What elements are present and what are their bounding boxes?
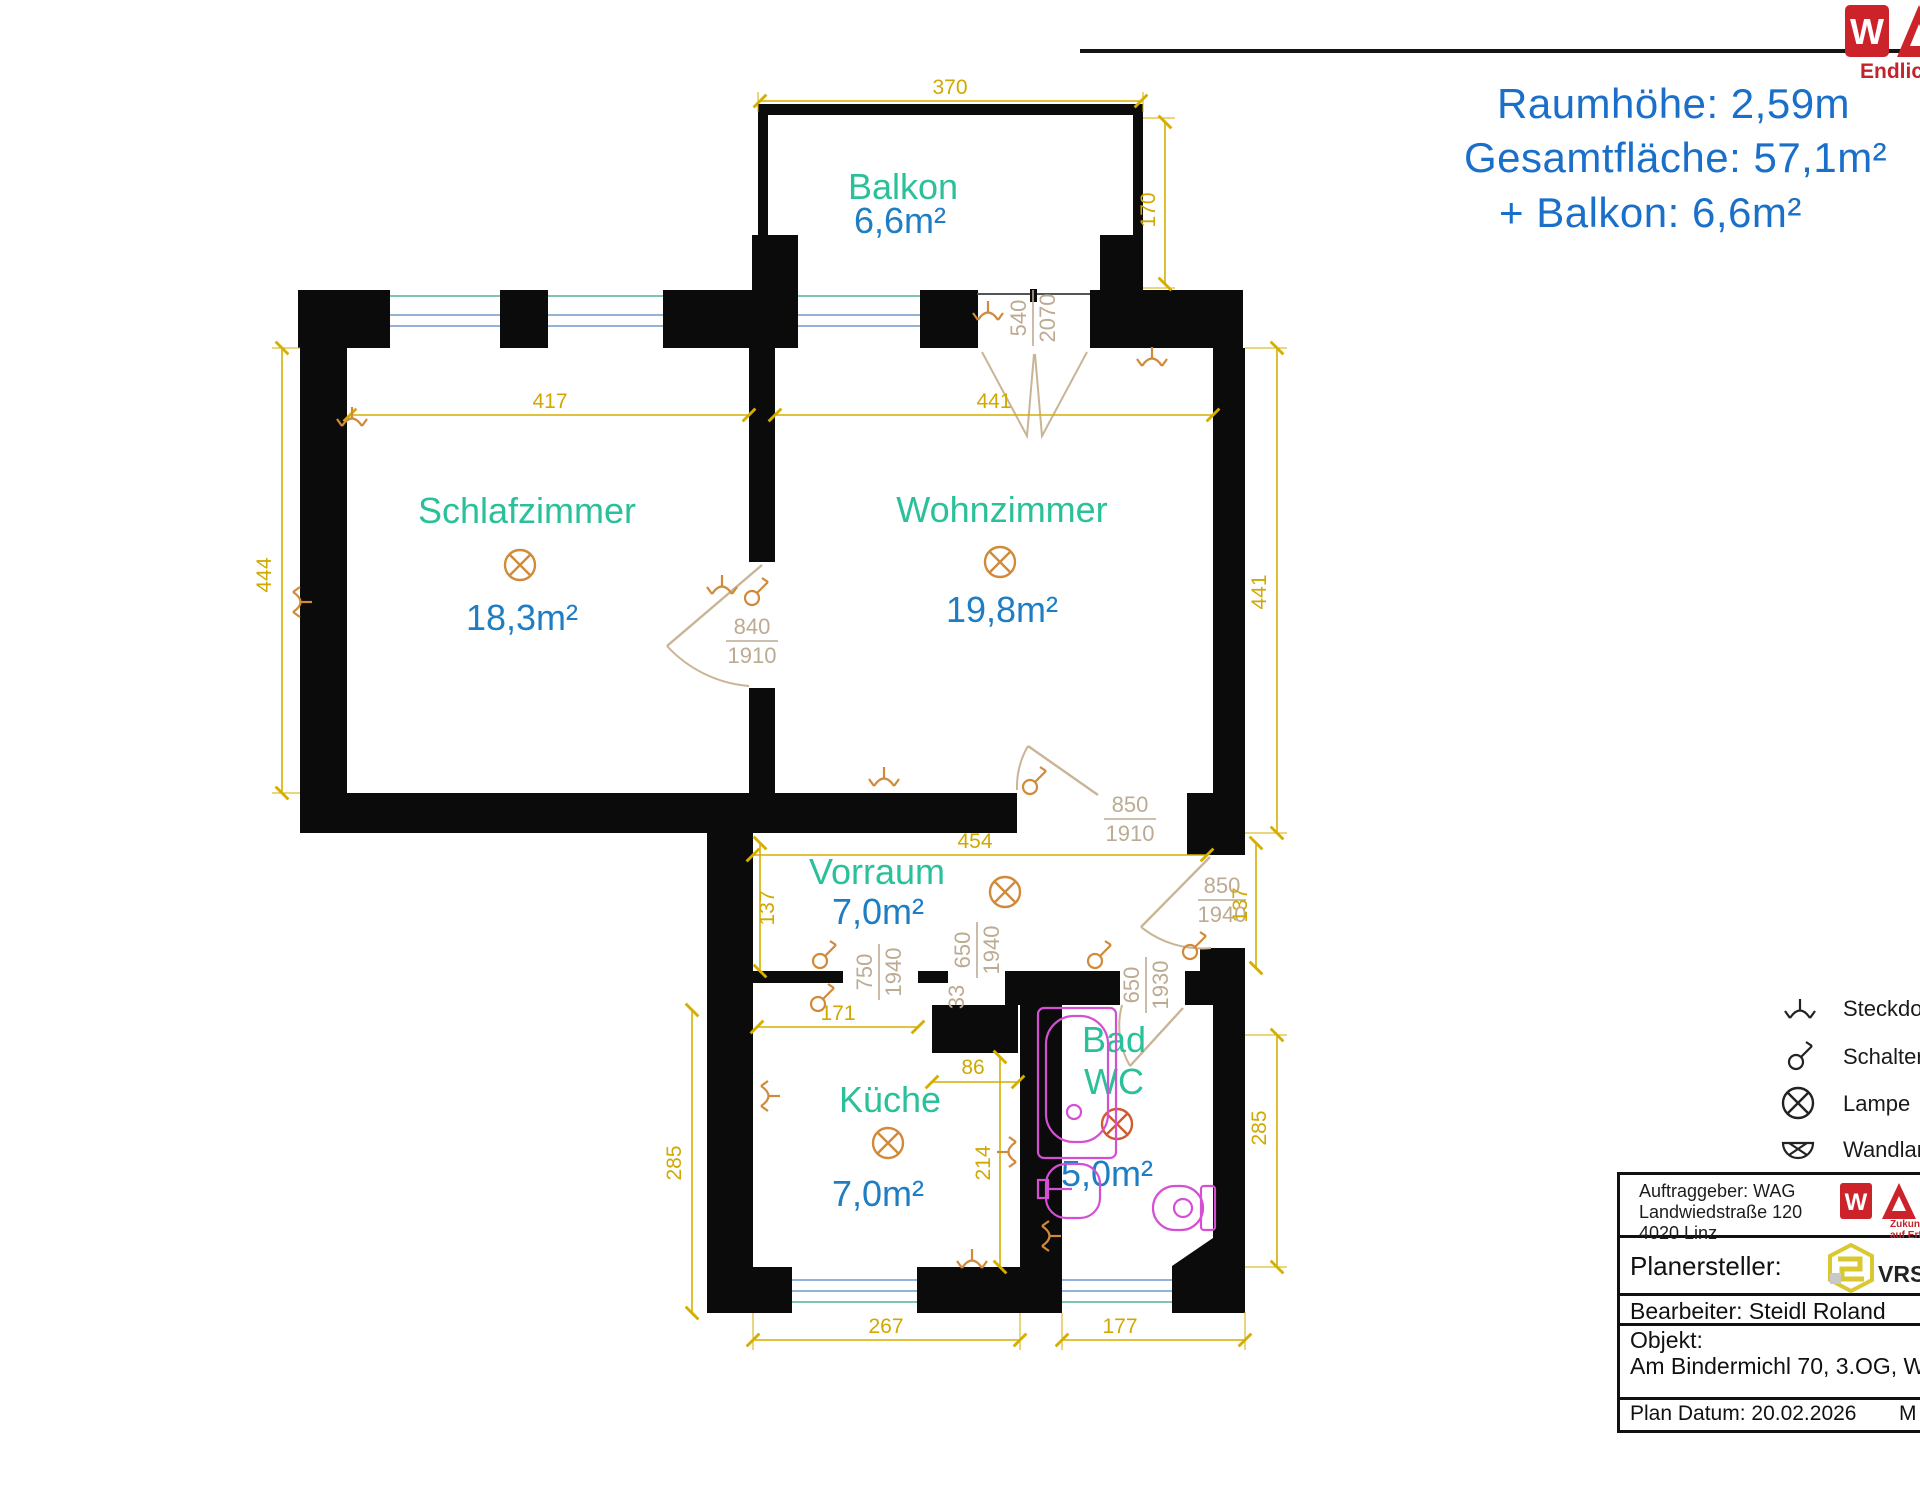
door-size: 750 [852,954,877,991]
dim-balkon-depth: 170 [1137,192,1160,227]
massstab-label: M [1899,1402,1917,1426]
outlet-icon [761,1081,780,1111]
kitchen-door-label: 750 1940 [852,944,906,1000]
legend-label-steckdose: Steckdose [1843,996,1920,1021]
dim-vorraum-left: 137 [756,890,779,925]
dim-schlaf-width: 417 [532,390,567,413]
legend-label-wandlampe: Wandlampe [1843,1137,1920,1162]
bath-door-label: 650 1930 [1119,957,1173,1013]
header-raumhoehe: Raumhöhe: 2,59m [1497,80,1850,128]
header-rule [1080,49,1920,53]
lamp-icon [990,877,1020,907]
bathtub-drain [1067,1105,1081,1119]
wag-tagline: Endlich [1860,60,1920,83]
wag-tagline-1: Zukunf [1890,1219,1920,1230]
door-size: 650 [1119,967,1144,1004]
dim-kueche-height: 285 [663,1145,686,1180]
objekt-value: Am Bindermichl 70, 3.OG, WG 7 [1630,1353,1920,1380]
lamp-icon [505,550,535,580]
door-size: 1910 [728,643,777,668]
dim-kueche-width: 267 [868,1315,903,1338]
door-size: 650 [950,932,975,969]
room-area-vorraum: 7,0m² [832,891,924,932]
top-brand: W Endlich [1080,5,1920,83]
legend-walllamp-icon [1783,1143,1813,1158]
dim-wohn-height: 441 [1248,574,1271,609]
client-street: Landwiedstraße 120 [1639,1202,1802,1223]
balcony-door-label: 540 2070 [1006,290,1060,346]
client-city: 4020 Linz [1639,1223,1717,1244]
header-balkon: + Balkon: 6,6m² [1499,189,1802,237]
floorplan-page: 540 2070 840 1910 850 1910 850 1940 750 … [0,0,1920,1486]
legend-outlet-icon [1785,999,1815,1018]
dim-balkon-width: 370 [932,76,967,99]
outlet-icon [869,767,899,786]
switch-icon [745,578,768,605]
dim-vorraum-width: 454 [957,830,992,853]
room-area-bad: 5,0m² [1061,1153,1153,1194]
door-size: 33 [944,985,969,1009]
outlet-icon [957,1249,987,1268]
titleblock-divider [1620,1293,1920,1296]
titleblock-divider [1620,1397,1920,1400]
client-name: Auftraggeber: WAG [1639,1181,1795,1202]
door-size: 840 [734,614,771,639]
title-block: Auftraggeber: WAG Landwiedstraße 120 402… [1617,1172,1920,1433]
room-area-balkon: 6,6m² [854,200,946,241]
dim-nische: 86 [961,1056,984,1079]
plan-datum: Plan Datum: 20.02.2026 [1630,1402,1857,1426]
dim-schlaf-height: 444 [253,557,276,592]
legend-label-lampe: Lampe [1843,1091,1910,1116]
legend-switch-icon [1789,1042,1812,1069]
room-name-bad: Bad [1082,1019,1146,1060]
dim-vorraum-right: 137 [1229,887,1252,922]
room-area-wohnzimmer: 19,8m² [946,589,1058,630]
dim-kueche-right: 214 [972,1145,995,1180]
dim-wohn-width: 441 [976,390,1011,413]
pier-dim-label: 33 [944,985,969,1009]
legend-label-schalter: Schalter [1843,1044,1920,1069]
wag-logo-w: W [1850,11,1884,52]
lamp-icon [873,1128,903,1158]
wag-tagline-2: auf Erfa [1890,1230,1920,1241]
lamp-icon [985,547,1015,577]
room-name-vorraum: Vorraum [809,851,945,892]
room-area-kueche: 7,0m² [832,1173,924,1214]
vr-logo [1828,1243,1874,1295]
wag-logo-small-w: W [1845,1189,1868,1216]
toilet-detail [1174,1199,1192,1217]
vr-wordmark: VRSt [1878,1261,1920,1288]
room-name-wohnzimmer: Wohnzimmer [896,489,1107,530]
legend-lamp-icon [1783,1088,1813,1118]
bearbeiter: Bearbeiter: Steidl Roland [1630,1298,1886,1325]
passage-label: 650 1940 [950,922,1004,978]
door-size: 1930 [1148,961,1173,1010]
objekt-label: Objekt: [1630,1327,1703,1354]
switch-icon [1088,941,1111,968]
door-size: 1940 [881,948,906,997]
door-size: 1910 [1106,821,1155,846]
planersteller-label: Planersteller: [1630,1251,1782,1282]
outlet-icon [1137,347,1167,366]
door-size: 2070 [1035,294,1060,343]
door-size: 1940 [979,926,1004,975]
switch-icon [1023,767,1046,794]
dim-bad-height: 285 [1248,1110,1271,1145]
room-name-schlafzimmer: Schlafzimmer [418,490,636,531]
room-area-schlafzimmer: 18,3m² [466,597,578,638]
header-gesamtflaeche: Gesamtfläche: 57,1m² [1464,134,1887,182]
room-name-kueche: Küche [839,1079,941,1120]
legend: Steckdose Schalter Lampe Wandlampe [1783,996,1920,1162]
door-size: 850 [1112,792,1149,817]
switch-icon [813,941,836,968]
livingroom-door-label: 850 1910 [1104,792,1156,846]
door-size: 540 [1006,300,1031,337]
dim-bad-width: 177 [1102,1315,1137,1338]
bedroom-door-label: 840 1910 [726,614,778,668]
room-name-wc: WC [1084,1061,1144,1102]
toilet-bowl [1153,1186,1203,1230]
